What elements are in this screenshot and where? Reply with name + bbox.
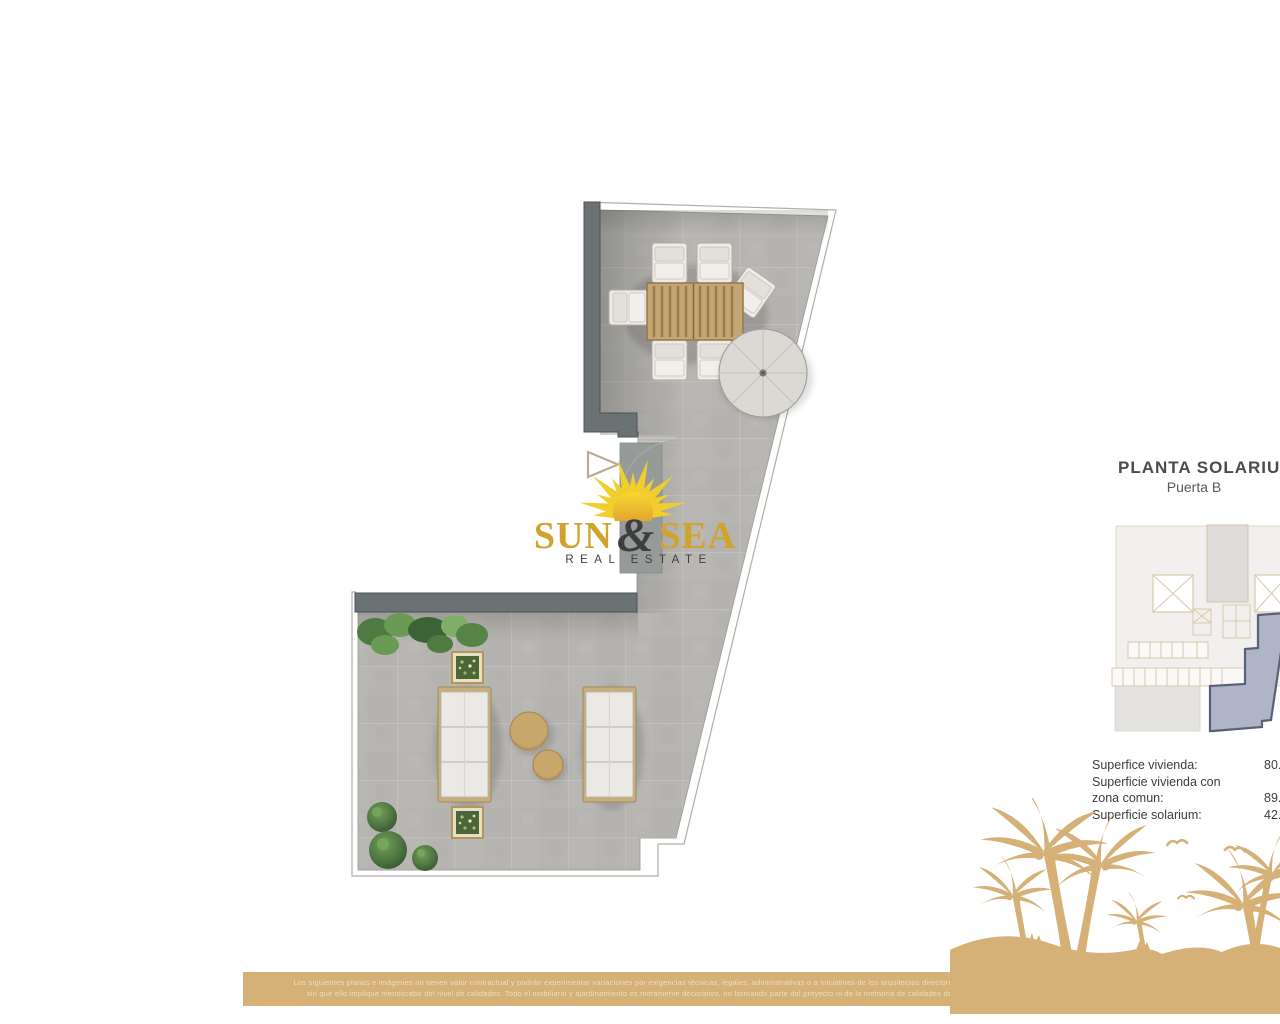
disclaimer-line1: Los siguientes planos e imágenes no tien… <box>263 977 1033 988</box>
keyplan-block-bottom <box>1115 684 1200 731</box>
area-label: Superfice vivienda: <box>1092 758 1198 772</box>
keyplan-block-top <box>1207 525 1248 602</box>
disclaimer-line2: sin que ello implique menoscabo del nive… <box>263 988 1033 999</box>
seagull-icon <box>1167 840 1187 845</box>
area-row: Superfice vivienda: 80. <box>1092 757 1280 774</box>
page: SUN&SEA REAL ESTATE PLANTA SOLARIUM Puer… <box>0 0 1280 1024</box>
wall-lower <box>355 593 637 612</box>
area-label: Superficie vivienda con <box>1092 775 1221 789</box>
area-value: 80. <box>1264 757 1280 774</box>
page-title: PLANTA SOLARIUM <box>1118 458 1280 478</box>
page-subtitle: Puerta B <box>1118 479 1270 495</box>
parasol <box>719 329 813 419</box>
island-mound <box>950 936 1280 1014</box>
key-plan <box>1110 520 1280 738</box>
top-shadow <box>600 210 828 236</box>
palm-grove <box>950 798 1280 1014</box>
disclaimer-text: Los siguientes planos e imágenes no tien… <box>263 977 1033 999</box>
logo-word-sea: SEA <box>659 515 735 557</box>
palm-decoration <box>940 798 1280 1014</box>
logo-tagline: REAL ESTATE <box>565 554 712 566</box>
seagull-icon <box>1178 896 1194 899</box>
area-row: Superficie vivienda con <box>1092 774 1280 791</box>
logo-word-sun: SUN <box>535 515 613 557</box>
dining-table <box>647 283 743 340</box>
sunsea-logo: SUN&SEA REAL ESTATE <box>535 450 735 575</box>
seagull-icon <box>1225 847 1245 852</box>
